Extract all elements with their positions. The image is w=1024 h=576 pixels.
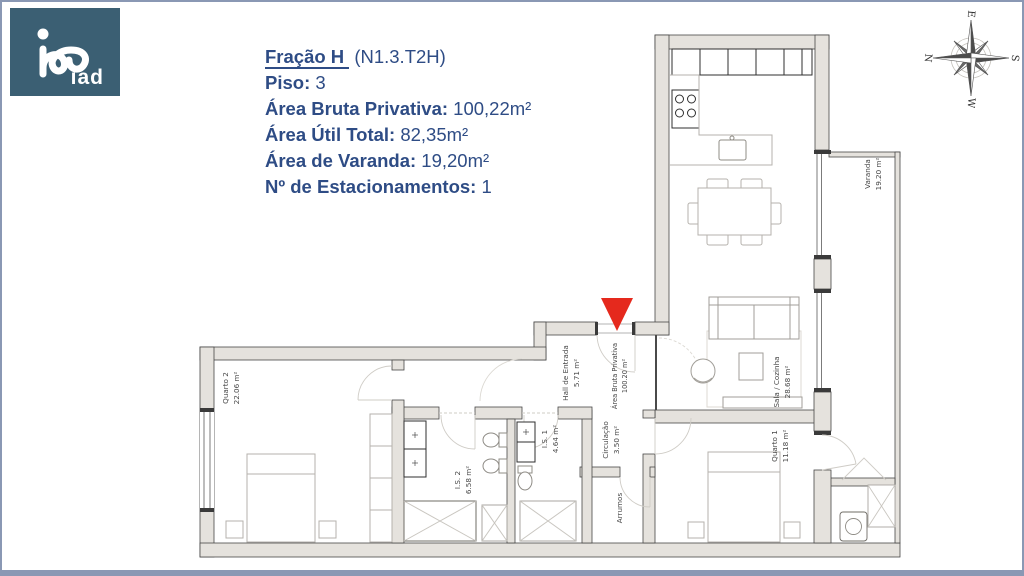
nightstand (226, 521, 243, 538)
floorplan-page: iad Fração H (N1.3.T2H) Piso: 3 Área Bru… (0, 0, 1024, 576)
room-area-hall: 5.71 m² (572, 359, 581, 387)
nightstand (688, 522, 704, 538)
room-label-is1: I.S. 1 (540, 430, 549, 448)
room-label-arrumos: Arrumos (615, 493, 624, 524)
value-area-bruta: 100.20 m² (621, 359, 629, 394)
nightstand (784, 522, 800, 538)
armchair (691, 359, 715, 383)
door-post (595, 322, 598, 335)
bidet-tank (499, 459, 507, 473)
room-area-is1: 4.64 m² (551, 425, 560, 453)
kitchen-furniture (669, 49, 812, 165)
dining-furniture (688, 179, 781, 245)
room-area-quarto2: 22.06 m² (232, 372, 241, 405)
room-area-sala: 28.68 m² (783, 366, 792, 399)
toilet-tank (499, 433, 507, 447)
bedroom1-furniture (688, 452, 800, 542)
room-label-sala: Sala / Cozinha (772, 356, 781, 407)
room-area-is2: 6.58 m² (464, 466, 473, 494)
room-label-circulacao: Circulação (601, 421, 610, 458)
room-labels: Quarto 2 22.06 m² I.S. 2 6.58 m² I.S. 1 … (221, 158, 883, 524)
balcony-furniture (840, 485, 895, 541)
room-label-varanda: Varanda (863, 159, 872, 189)
bed (708, 452, 780, 542)
floorplan-drawing: Quarto 2 22.06 m² I.S. 2 6.58 m² I.S. 1 … (2, 2, 1024, 576)
nightstand (319, 521, 336, 538)
entrance (595, 298, 635, 335)
toilet (483, 433, 499, 447)
room-label-is2: I.S. 2 (453, 471, 462, 489)
room-area-varanda: 19.20 m² (874, 158, 883, 191)
stove (672, 90, 699, 128)
kitchen-cabinets (672, 49, 812, 75)
bed (247, 454, 315, 542)
bedroom2-furniture (226, 414, 392, 542)
room-label-quarto1: Quarto 1 (770, 430, 779, 462)
interior-walls (392, 259, 895, 543)
room-area-quarto1: 11.18 m² (781, 430, 790, 463)
room-label-quarto2: Quarto 2 (221, 372, 230, 404)
kitchen-counter (669, 75, 772, 165)
dining-table (698, 188, 771, 235)
bidet (483, 459, 499, 473)
entrance-arrow (601, 298, 633, 331)
door-post (632, 322, 635, 335)
room-label-hall: Hall de Entrada (561, 345, 570, 401)
toilet (518, 472, 532, 490)
coffee-table (739, 353, 763, 380)
label-area-bruta: Área Bruta Privativa (610, 343, 619, 409)
kitchen-sink (719, 140, 746, 160)
room-area-circulacao: 3.50 m² (612, 426, 621, 454)
